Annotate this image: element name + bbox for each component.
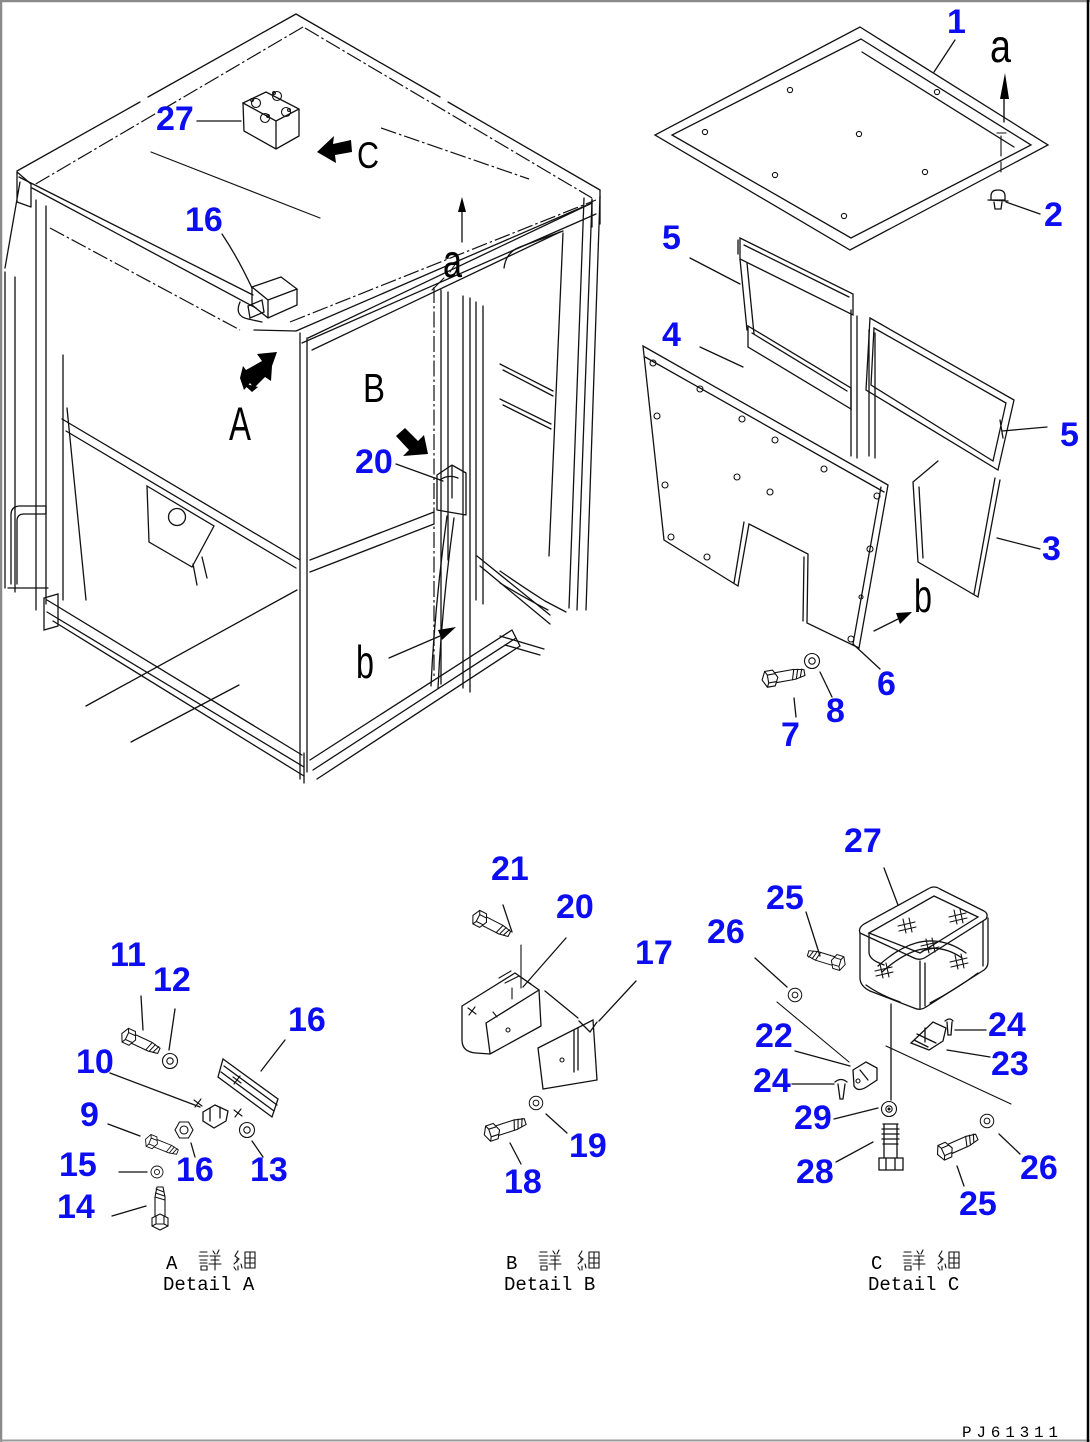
svg-text:8: 8 (826, 692, 845, 730)
svg-text:B: B (506, 1253, 517, 1275)
svg-text:A: A (229, 397, 251, 450)
svg-text:A: A (166, 1253, 178, 1275)
svg-text:5: 5 (1060, 416, 1079, 454)
svg-text:23: 23 (991, 1045, 1029, 1083)
svg-text:17: 17 (635, 934, 673, 972)
svg-text:22: 22 (755, 1017, 793, 1055)
svg-text:14: 14 (57, 1188, 95, 1226)
svg-text:12: 12 (153, 961, 191, 999)
svg-text:11: 11 (110, 936, 146, 974)
svg-text:Detail C: Detail C (868, 1274, 959, 1296)
svg-text:24: 24 (988, 1006, 1026, 1044)
svg-text:Detail A: Detail A (163, 1274, 255, 1296)
svg-text:19: 19 (569, 1127, 607, 1165)
svg-text:16: 16 (288, 1001, 326, 1039)
svg-text:Detail B: Detail B (504, 1274, 595, 1296)
svg-text:3: 3 (1042, 530, 1061, 568)
svg-text:27: 27 (156, 100, 194, 138)
svg-text:26: 26 (1020, 1149, 1058, 1187)
svg-text:29: 29 (794, 1099, 832, 1137)
svg-text:20: 20 (556, 888, 594, 926)
svg-text:b: b (356, 636, 374, 688)
svg-text:13: 13 (250, 1151, 288, 1189)
svg-text:5: 5 (662, 219, 681, 257)
svg-text:9: 9 (80, 1096, 99, 1134)
svg-text:16: 16 (185, 201, 223, 239)
svg-text:C: C (871, 1253, 882, 1275)
svg-text:25: 25 (959, 1185, 997, 1223)
svg-text:a: a (443, 235, 462, 287)
svg-text:10: 10 (76, 1043, 114, 1081)
svg-text:2: 2 (1044, 196, 1063, 234)
svg-text:b: b (914, 570, 932, 622)
svg-text:24: 24 (753, 1062, 791, 1100)
svg-text:28: 28 (796, 1153, 834, 1191)
svg-text:6: 6 (877, 665, 896, 703)
svg-text:26: 26 (707, 913, 745, 951)
svg-text:27: 27 (844, 822, 882, 860)
svg-text:C: C (357, 135, 379, 176)
svg-text:20: 20 (355, 443, 393, 481)
svg-text:18: 18 (504, 1163, 542, 1201)
svg-text:4: 4 (662, 316, 681, 354)
svg-text:a: a (990, 20, 1011, 72)
svg-text:PJ61311: PJ61311 (962, 1424, 1063, 1442)
svg-text:1: 1 (947, 3, 966, 41)
svg-text:7: 7 (781, 716, 800, 754)
svg-text:21: 21 (491, 850, 529, 888)
svg-text:25: 25 (766, 879, 804, 917)
svg-text:15: 15 (59, 1146, 97, 1184)
svg-text:B: B (363, 365, 385, 411)
